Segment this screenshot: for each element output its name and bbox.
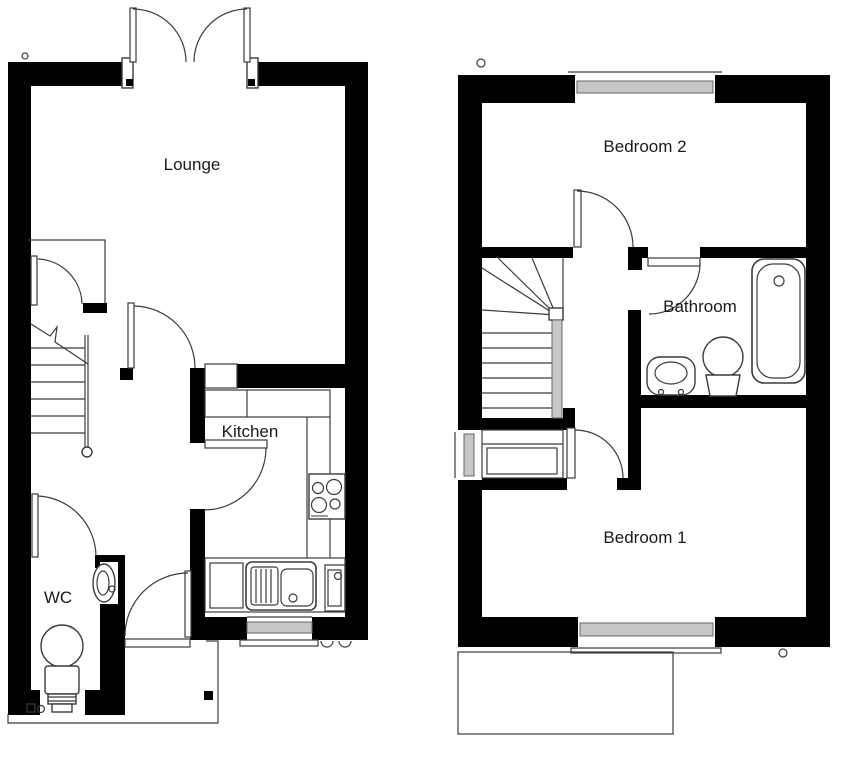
bedroom2-door <box>574 190 633 247</box>
wc-door <box>32 494 96 557</box>
kitchen-window <box>240 617 318 646</box>
drain-icons <box>321 641 351 647</box>
stairs-ground <box>31 324 92 457</box>
hob <box>309 474 345 519</box>
wc-basin <box>93 564 115 602</box>
lounge-label: Lounge <box>164 155 221 174</box>
floorplan-page: Lounge Kitchen WC <box>0 0 860 768</box>
front-door <box>125 571 191 647</box>
wall-vent-icon <box>779 649 787 657</box>
kitchen-door <box>204 440 267 510</box>
wall-vent-icon <box>22 53 28 59</box>
stairs-first <box>482 258 563 418</box>
window-bedroom2 <box>568 72 722 103</box>
understairs-cupboard <box>28 240 105 305</box>
side-window <box>455 430 482 480</box>
appliance <box>325 565 345 611</box>
ground-floor-plan: Lounge Kitchen WC <box>8 8 368 723</box>
floorplan-canvas: Lounge Kitchen WC <box>0 0 860 768</box>
bathroom-label: Bathroom <box>663 297 737 316</box>
bath <box>752 259 805 383</box>
bathroom-basin <box>647 357 695 395</box>
patio-outline-first <box>458 652 673 734</box>
kitchen-label: Kitchen <box>222 422 279 441</box>
bedroom2-label: Bedroom 2 <box>603 137 686 156</box>
first-floor-walls <box>458 75 830 647</box>
lounge-hall-door <box>128 303 195 368</box>
wc-label: WC <box>44 588 72 607</box>
window-bedroom1 <box>571 617 721 653</box>
french-doors <box>122 8 258 88</box>
bathroom-toilet <box>703 337 743 396</box>
wall-vent-icon <box>477 59 485 67</box>
bedroom1-door <box>567 428 623 478</box>
airing-cupboard <box>482 430 563 478</box>
first-floor-plan: Bedroom 2 Bathroom Bedroom 1 <box>455 59 830 734</box>
bedroom1-label: Bedroom 1 <box>603 528 686 547</box>
kitchen-sink <box>246 562 316 610</box>
